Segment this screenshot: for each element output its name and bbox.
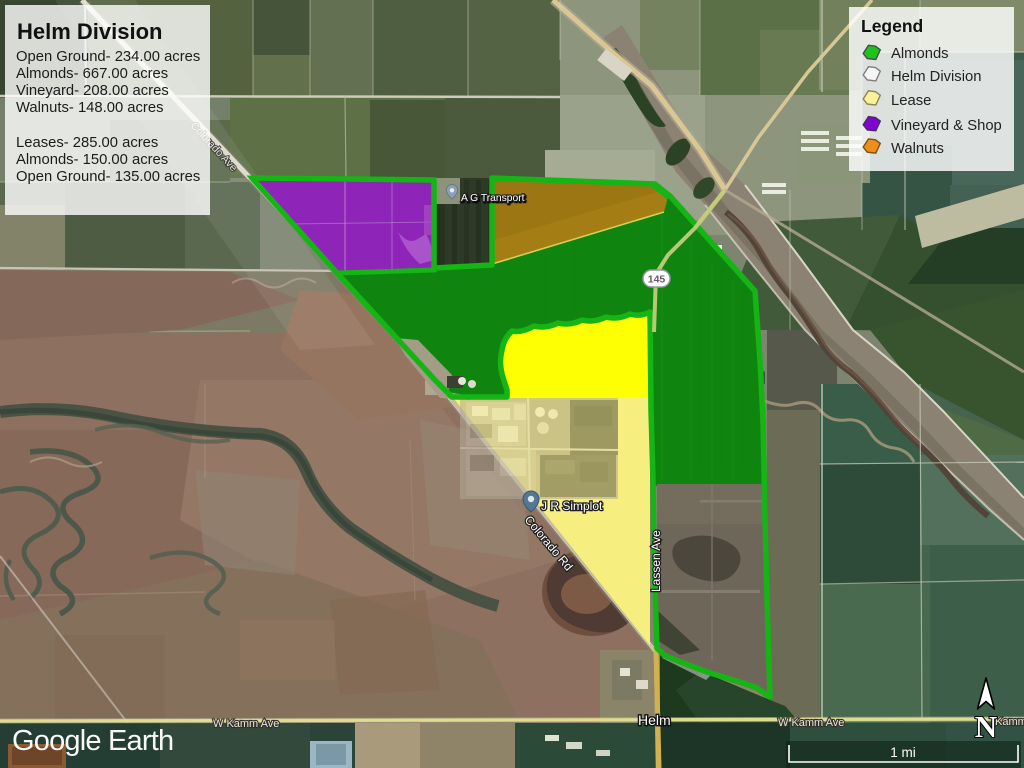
svg-text:Leases- 285.00 acres: Leases- 285.00 acres — [16, 135, 158, 151]
svg-text:J R Simplot: J R Simplot — [541, 499, 603, 513]
svg-text:W Kamm Ave: W Kamm Ave — [213, 718, 279, 730]
svg-text:N: N — [975, 709, 997, 744]
svg-text:Open Ground- 135.00 acres: Open Ground- 135.00 acres — [16, 169, 200, 185]
svg-text:Almonds- 150.00 acres: Almonds- 150.00 acres — [16, 152, 168, 168]
svg-text:Almonds- 667.00 acres: Almonds- 667.00 acres — [16, 66, 168, 82]
svg-text:Open Ground- 234.00 acres: Open Ground- 234.00 acres — [16, 49, 200, 65]
svg-text:Vineyard- 208.00 acres: Vineyard- 208.00 acres — [16, 83, 169, 99]
svg-text:Google Earth: Google Earth — [12, 725, 173, 757]
svg-text:1 mi: 1 mi — [890, 745, 916, 760]
svg-text:Almonds: Almonds — [891, 46, 949, 62]
svg-text:Walnuts- 148.00 acres: Walnuts- 148.00 acres — [16, 100, 164, 116]
svg-text:Lassen Ave: Lassen Ave — [649, 530, 663, 592]
svg-text:Helm Division: Helm Division — [891, 69, 981, 85]
svg-text:Helm Division: Helm Division — [17, 19, 162, 44]
svg-text:Helm: Helm — [638, 712, 671, 728]
svg-text:145: 145 — [648, 274, 666, 286]
svg-text:W Kamm Ave: W Kamm Ave — [778, 717, 844, 729]
svg-text:Vineyard & Shop: Vineyard & Shop — [891, 118, 1002, 134]
svg-text:Walnuts: Walnuts — [891, 141, 944, 157]
svg-text:A G Transport: A G Transport — [461, 193, 525, 204]
svg-text:Kamm: Kamm — [995, 716, 1024, 728]
svg-text:Lease: Lease — [891, 93, 931, 109]
svg-text:Legend: Legend — [861, 16, 923, 36]
